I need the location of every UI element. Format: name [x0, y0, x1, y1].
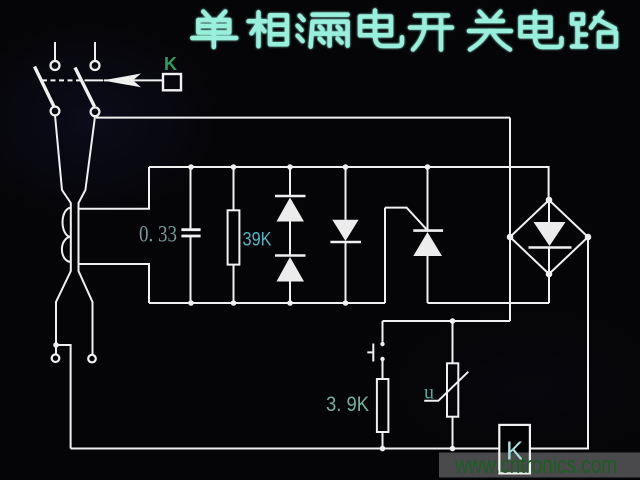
svg-text:0. 33: 0. 33	[139, 222, 177, 247]
svg-text:39K: 39K	[243, 229, 272, 251]
svg-text:u: u	[424, 382, 434, 404]
svg-text:www.cntronics.com: www.cntronics.com	[454, 452, 617, 479]
svg-text:K: K	[164, 54, 177, 74]
svg-text:3. 9K: 3. 9K	[326, 393, 369, 416]
